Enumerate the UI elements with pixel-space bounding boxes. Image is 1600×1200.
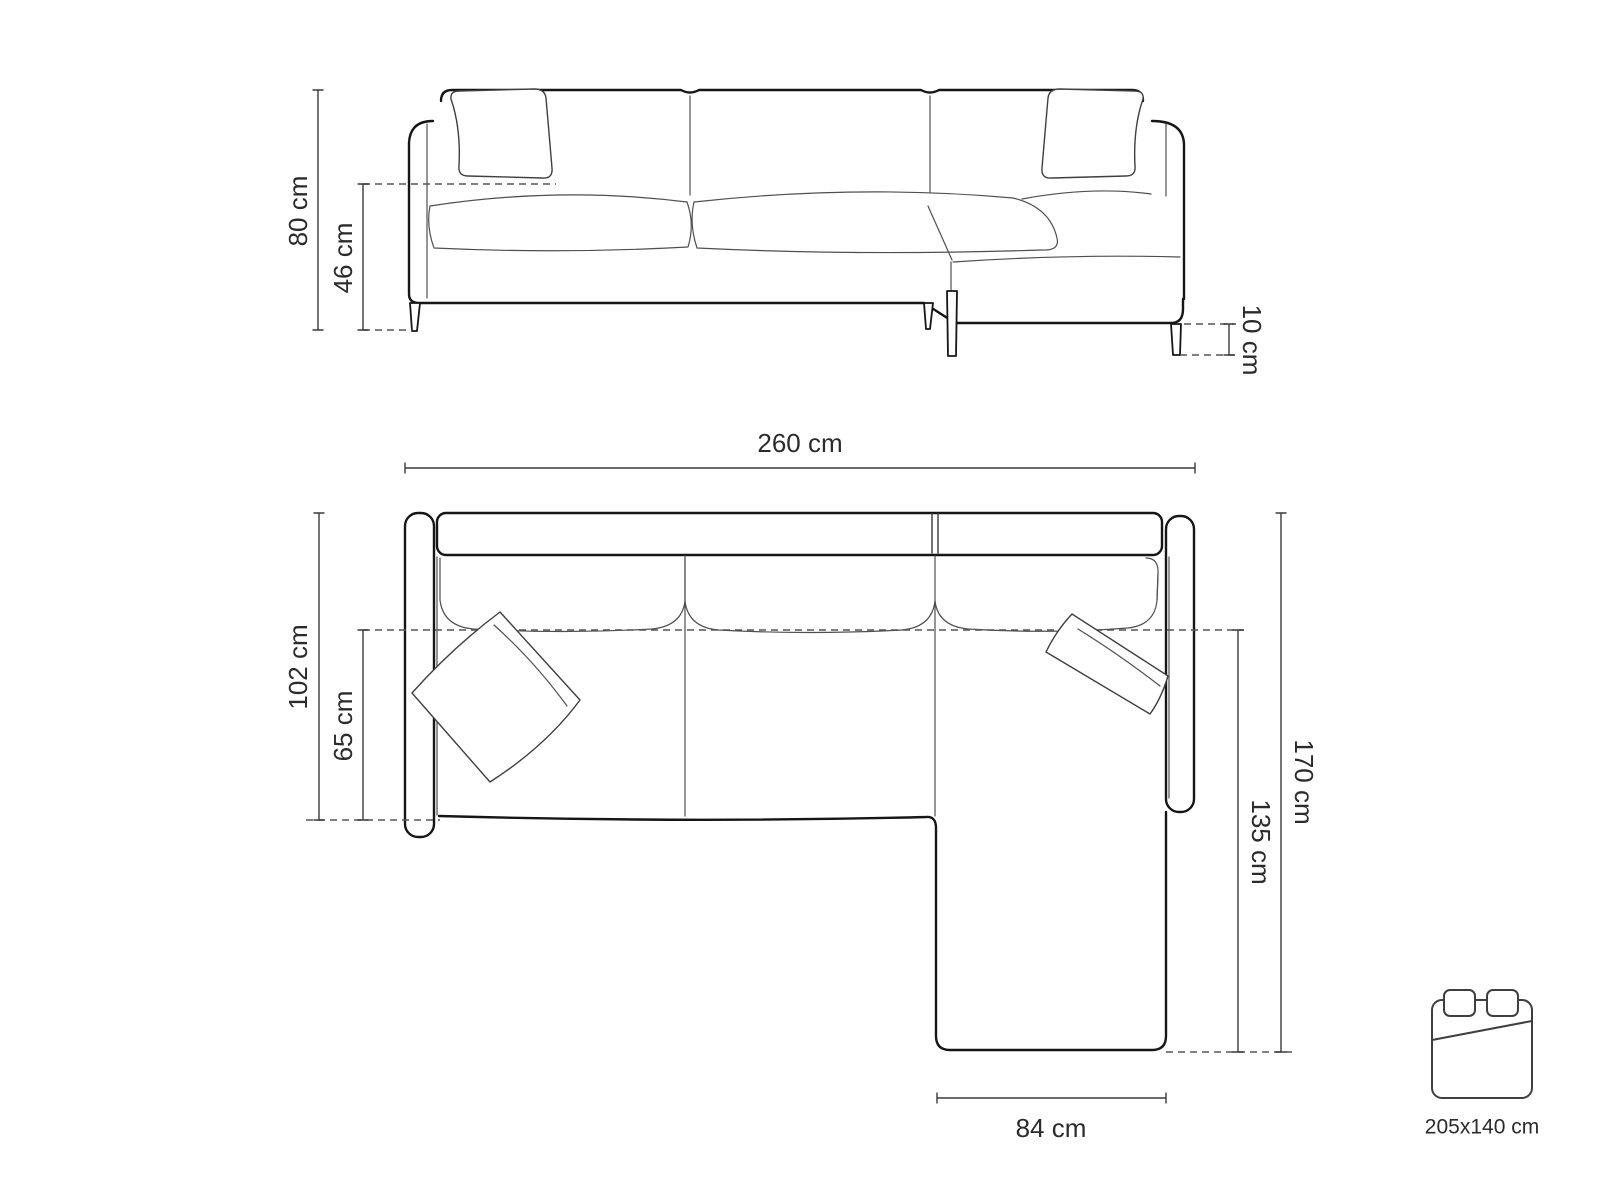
dim-total-length-label: 170 cm <box>1289 739 1319 824</box>
front-pillow-right <box>1042 89 1143 178</box>
front-sofa-drawing <box>409 89 1184 356</box>
dim-total-depth: 102 cm <box>283 513 325 820</box>
double-bed-icon <box>1432 990 1532 1098</box>
dim-total-height: 80 cm <box>283 90 324 330</box>
dim-seat-depth-label: 65 cm <box>328 691 358 762</box>
dim-chaise-width: 84 cm <box>937 1093 1166 1143</box>
bed-pillow-right <box>1487 990 1518 1016</box>
dim-chaise-length: 135 cm <box>1233 630 1277 1052</box>
dim-chaise-width-label: 84 cm <box>1016 1113 1087 1143</box>
bed-pillow-left <box>1444 990 1475 1016</box>
sleeping-area: 205x140 cm <box>1425 990 1539 1139</box>
dim-seat-height-label: 46 cm <box>328 223 358 294</box>
dim-total-height-label: 80 cm <box>283 176 313 247</box>
front-right-arm <box>1152 121 1184 299</box>
dim-seat-height: 46 cm <box>328 184 369 330</box>
front-leg-middle <box>924 303 933 329</box>
top-view: 102 cm 65 cm 170 cm 135 cm 84 cm <box>283 513 1319 1143</box>
front-view: 80 cm 46 cm 10 cm <box>283 89 1267 375</box>
diagram-canvas: 80 cm 46 cm 10 cm 260 cm <box>0 0 1600 1200</box>
dim-total-depth-label: 102 cm <box>283 624 313 709</box>
dim-leg-height-label: 10 cm <box>1237 305 1267 376</box>
top-backrest-division <box>932 514 938 553</box>
front-leg-right <box>1171 324 1181 355</box>
front-leg-left <box>410 303 420 331</box>
sleeping-area-label: 205x140 cm <box>1425 1116 1539 1139</box>
dim-chaise-length-label: 135 cm <box>1246 799 1276 884</box>
front-seat-cushion-left <box>429 195 692 251</box>
top-backrest-band <box>437 513 1162 555</box>
front-pillow-left <box>451 89 552 178</box>
dim-total-width: 260 cm <box>405 428 1195 474</box>
front-leg-chaise <box>947 291 957 356</box>
dim-leg-height: 10 cm <box>1224 305 1268 376</box>
front-chaise-front-top <box>953 256 1180 262</box>
top-right-armrest <box>1166 516 1194 812</box>
dim-total-length: 170 cm <box>1276 513 1320 1052</box>
front-chaise-seat-top <box>1022 191 1151 199</box>
top-pillows <box>412 612 1168 782</box>
top-back-cushion-right-edge <box>1157 574 1158 600</box>
top-front-edge-chaise <box>439 812 1166 1050</box>
sofa-dimension-diagram: 80 cm 46 cm 10 cm 260 cm <box>0 0 1600 1200</box>
dim-seat-depth: 65 cm <box>328 630 369 820</box>
front-seat-cushion-middle <box>692 192 1057 253</box>
top-sofa-drawing <box>405 513 1194 1050</box>
top-back-cushion-middle <box>685 601 935 633</box>
top-back-cushion-left <box>440 558 685 632</box>
top-back-cushion-right <box>935 558 1158 631</box>
dim-total-width-label: 260 cm <box>757 428 842 458</box>
